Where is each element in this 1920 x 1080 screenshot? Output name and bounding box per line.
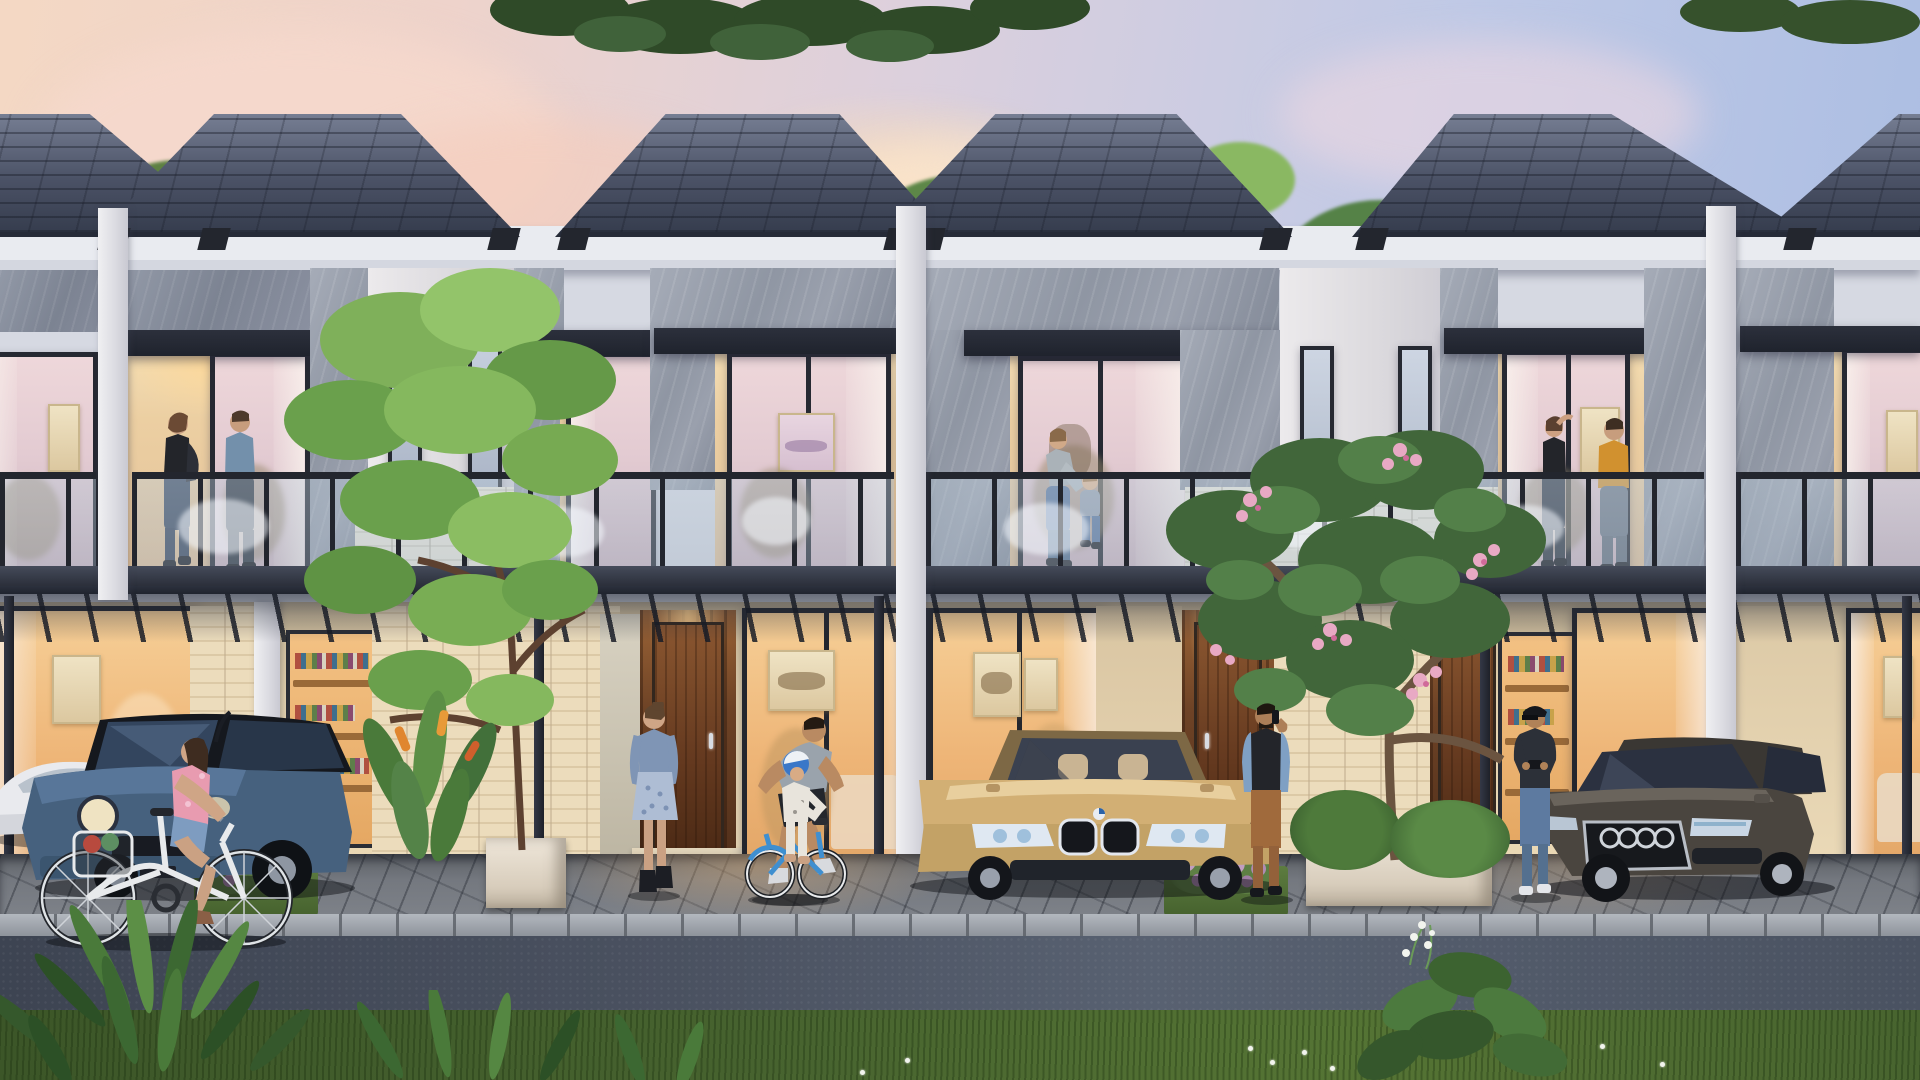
fern-cluster-mid <box>300 990 760 1080</box>
hedge <box>1390 800 1510 878</box>
balcony-lintel <box>1740 326 1920 352</box>
child-on-bike <box>740 742 850 908</box>
gutter-cap <box>487 228 520 250</box>
overhanging-branch <box>1660 0 1920 62</box>
gutter-cap <box>1259 228 1292 250</box>
driveway-mother <box>618 702 690 902</box>
balcony-lintel <box>654 328 896 354</box>
pergola-post <box>1902 596 1912 888</box>
stone-panel <box>650 268 896 330</box>
gutter-cap <box>1783 228 1816 250</box>
pier <box>98 208 128 600</box>
gold-sedan <box>890 728 1290 900</box>
heliconia-shrub <box>340 660 530 880</box>
gutter-cap <box>197 228 230 250</box>
stone-panel <box>924 268 1279 330</box>
pergola-post <box>874 596 884 888</box>
hedge <box>1290 790 1400 870</box>
phone-man-door <box>1232 700 1302 908</box>
graphite-sedan <box>1532 736 1842 904</box>
gutter-cap <box>1355 228 1388 250</box>
overhanging-branch <box>440 0 1100 100</box>
gutter-cap <box>557 228 590 250</box>
townhouse-render <box>0 0 1920 1080</box>
phone-man-car <box>1502 700 1570 906</box>
white-flower-plant <box>1330 905 1570 1080</box>
